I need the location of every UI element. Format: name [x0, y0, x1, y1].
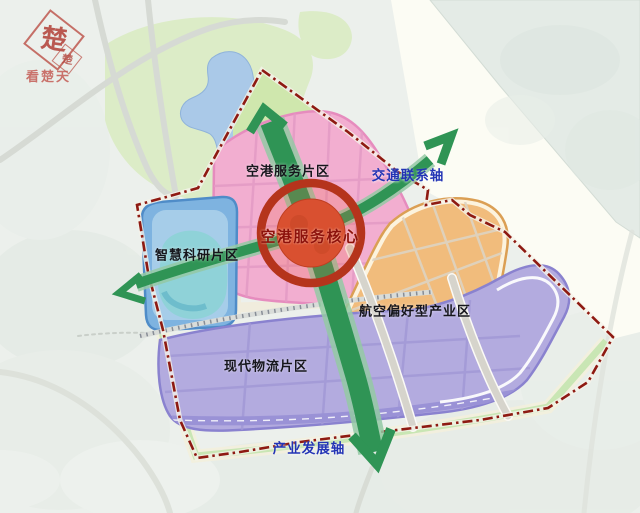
core-label: 空港服务核心: [260, 226, 359, 247]
axis-label-industry-development: 产业发展轴: [273, 437, 346, 457]
planning-map: 空港服务片区 智慧科研片区 航空偏好型产业区 现代物流片区 交通联系轴 产业发展…: [0, 0, 640, 513]
zone-label-modern-logistics: 现代物流片区: [224, 356, 308, 375]
zone-label-airport-service: 空港服务片区: [246, 161, 330, 180]
axis-label-transport-link: 交通联系轴: [372, 164, 445, 184]
seal-caption: 看楚天: [26, 66, 71, 85]
zone-label-smart-research: 智慧科研片区: [155, 245, 239, 264]
zone-label-aviation-industry: 航空偏好型产业区: [359, 301, 471, 320]
watermark-seal: 楚 楚 看楚天: [14, 4, 98, 88]
